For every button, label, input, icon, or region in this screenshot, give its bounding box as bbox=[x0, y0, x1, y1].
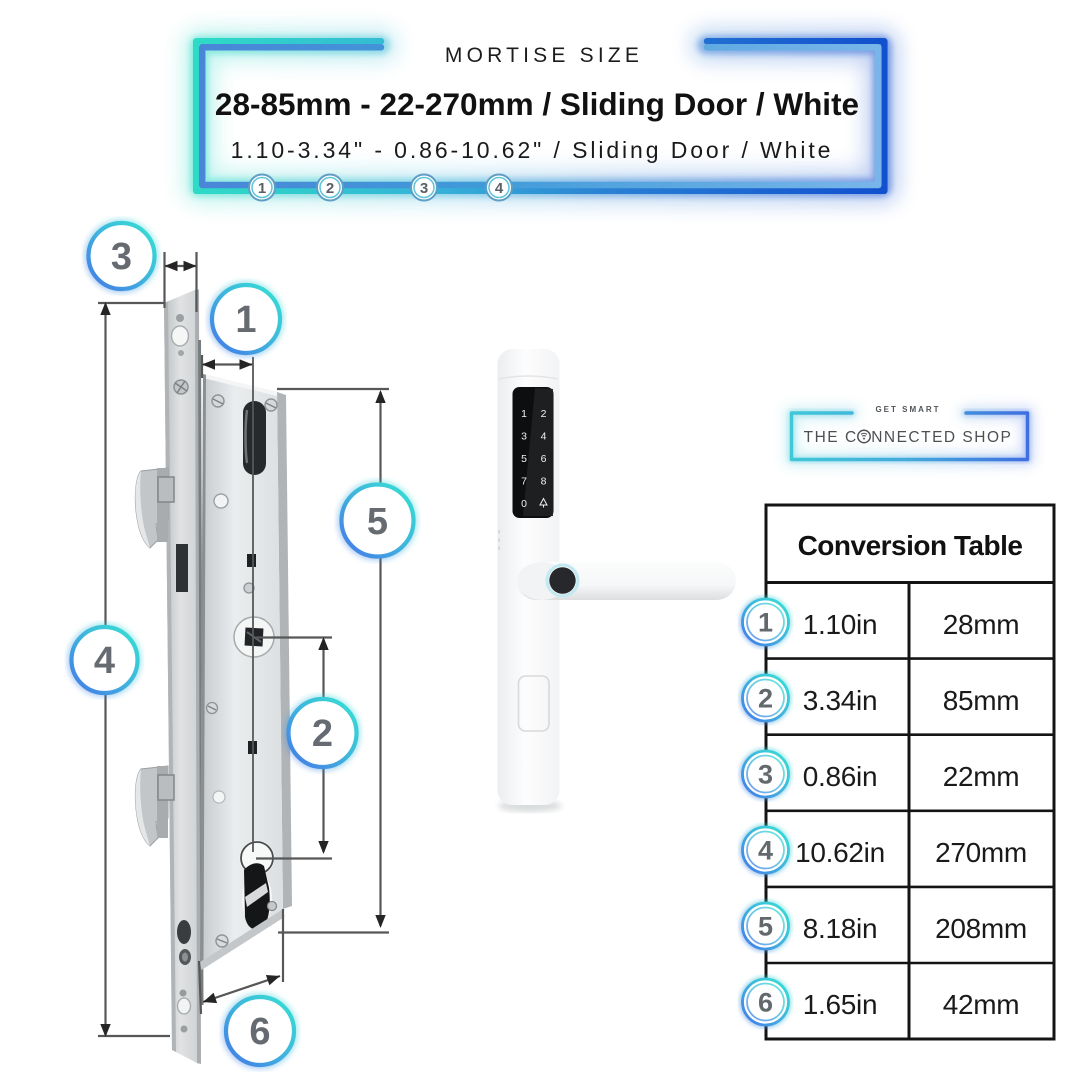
svg-text:2: 2 bbox=[326, 180, 334, 197]
svg-text:22mm: 22mm bbox=[943, 761, 1020, 792]
svg-text:208mm: 208mm bbox=[935, 913, 1027, 944]
svg-text:28-85mm - 22-270mm / Sliding D: 28-85mm - 22-270mm / Sliding Door / Whit… bbox=[215, 86, 859, 122]
svg-text:8.18in: 8.18in bbox=[803, 913, 878, 944]
svg-text:4: 4 bbox=[541, 431, 547, 443]
svg-text:8: 8 bbox=[541, 476, 547, 488]
svg-text:1: 1 bbox=[235, 299, 256, 341]
svg-text:GET SMART: GET SMART bbox=[875, 405, 940, 414]
svg-text:28mm: 28mm bbox=[943, 609, 1020, 640]
svg-text:2: 2 bbox=[758, 684, 773, 714]
svg-text:7: 7 bbox=[521, 476, 527, 488]
svg-text:1.10-3.34" - 0.86-10.62" / Sli: 1.10-3.34" - 0.86-10.62" / Sliding Door … bbox=[231, 137, 834, 163]
svg-text:4: 4 bbox=[495, 180, 504, 197]
svg-text:4: 4 bbox=[758, 836, 773, 866]
svg-text:THE CONNECTED SHOP: THE CONNECTED SHOP bbox=[804, 429, 1013, 446]
svg-text:42mm: 42mm bbox=[943, 989, 1020, 1020]
svg-text:3: 3 bbox=[521, 431, 527, 443]
svg-text:4: 4 bbox=[94, 640, 115, 682]
svg-text:0.86in: 0.86in bbox=[803, 761, 878, 792]
svg-text:270mm: 270mm bbox=[935, 837, 1027, 868]
svg-text:1: 1 bbox=[258, 180, 266, 197]
svg-text:2: 2 bbox=[541, 408, 547, 420]
svg-text:3: 3 bbox=[420, 180, 428, 197]
svg-text:3: 3 bbox=[111, 236, 132, 278]
svg-text:1.10in: 1.10in bbox=[803, 609, 878, 640]
svg-text:5: 5 bbox=[367, 501, 388, 543]
svg-text:3.34in: 3.34in bbox=[803, 685, 878, 716]
svg-text:1: 1 bbox=[758, 608, 773, 638]
svg-text:1: 1 bbox=[521, 408, 527, 420]
svg-text:MORTISE SIZE: MORTISE SIZE bbox=[445, 44, 643, 67]
svg-text:2: 2 bbox=[312, 713, 333, 755]
svg-text:6: 6 bbox=[249, 1011, 270, 1053]
svg-text:5: 5 bbox=[521, 453, 527, 465]
svg-text:0: 0 bbox=[521, 498, 527, 510]
svg-text:6: 6 bbox=[541, 453, 547, 465]
svg-text:6: 6 bbox=[758, 988, 773, 1018]
svg-text:Conversion Table: Conversion Table bbox=[798, 530, 1023, 561]
svg-text:85mm: 85mm bbox=[943, 685, 1020, 716]
svg-text:1.65in: 1.65in bbox=[803, 989, 878, 1020]
svg-text:10.62in: 10.62in bbox=[795, 837, 885, 868]
svg-text:5: 5 bbox=[758, 912, 773, 942]
svg-text:3: 3 bbox=[758, 760, 773, 790]
